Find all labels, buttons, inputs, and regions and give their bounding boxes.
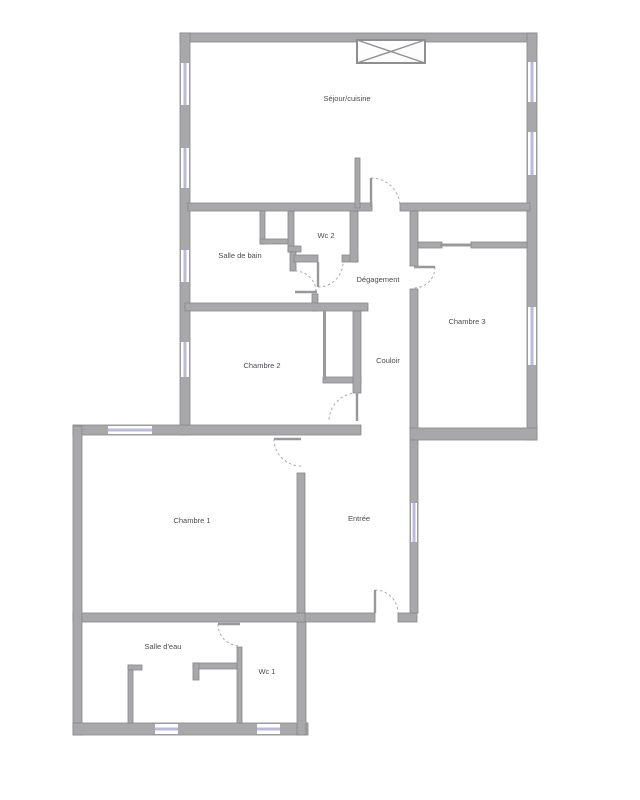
wall-segment	[260, 239, 291, 244]
entree-door-swing	[375, 590, 398, 613]
room-label-salle-deau: Salle d'eau	[145, 642, 182, 651]
closet-front	[440, 244, 471, 247]
floor-plan-page: Séjour/cuisineWc 2Salle de bainDégagemen…	[0, 0, 640, 800]
wall-segment	[128, 665, 133, 723]
wall-segment	[193, 663, 199, 680]
room-label-degagement: Dégagement	[357, 275, 401, 284]
room-label-couloir: Couloir	[376, 356, 400, 365]
floor-plan-svg: Séjour/cuisineWc 2Salle de bainDégagemen…	[0, 0, 640, 800]
wall-segment	[410, 211, 418, 266]
chambre1-door-swing	[274, 439, 301, 466]
wall-segment	[128, 665, 142, 670]
window	[184, 250, 187, 282]
window	[184, 342, 187, 377]
wall-segment	[193, 663, 237, 669]
room-label-sejour-cuisine: Séjour/cuisine	[323, 94, 370, 103]
window	[184, 63, 187, 105]
room-label-wc-1: Wc 1	[258, 667, 275, 676]
wall-segment	[410, 428, 537, 440]
wall-segment	[237, 647, 242, 723]
window	[531, 132, 534, 175]
sejour-door-swing	[371, 178, 400, 207]
room-label-chambre-3: Chambre 3	[448, 317, 485, 326]
window	[257, 728, 280, 731]
room-label-salle-de-bain: Salle de bain	[218, 251, 261, 260]
window	[155, 728, 178, 731]
room-label-wc-2: Wc 2	[317, 231, 334, 240]
wall-segment	[73, 613, 305, 622]
wall-segment	[471, 242, 527, 248]
wall-segment	[353, 311, 361, 393]
window	[531, 62, 534, 102]
wall-segment	[188, 203, 372, 211]
wall-segment	[410, 289, 418, 432]
chambre3-door-swing	[414, 267, 435, 288]
wall-segment	[73, 426, 82, 735]
wall-segment	[305, 613, 375, 622]
closet-front	[323, 311, 326, 380]
wall-segment	[297, 622, 306, 735]
wall-segment	[297, 473, 305, 613]
room-label-entree: Entrée	[348, 514, 370, 523]
window	[108, 429, 152, 432]
wall-segment	[418, 242, 442, 248]
window	[531, 307, 534, 365]
bain-door-swing	[295, 271, 316, 292]
wc1-door-swing	[218, 624, 240, 646]
wall-segment	[398, 613, 417, 622]
room-label-chambre-2: Chambre 2	[243, 361, 280, 370]
room-label-chambre-1: Chambre 1	[173, 516, 210, 525]
wall-segment	[400, 203, 530, 211]
wall-segment	[355, 158, 360, 208]
chambre2-door-swing	[329, 393, 357, 421]
wall-segment	[350, 211, 358, 262]
window	[184, 148, 187, 188]
wall-segment	[185, 303, 368, 311]
wall-segment	[288, 246, 301, 252]
wc2-door-swing	[318, 262, 343, 287]
window	[413, 503, 416, 542]
wall-segment	[294, 255, 318, 262]
